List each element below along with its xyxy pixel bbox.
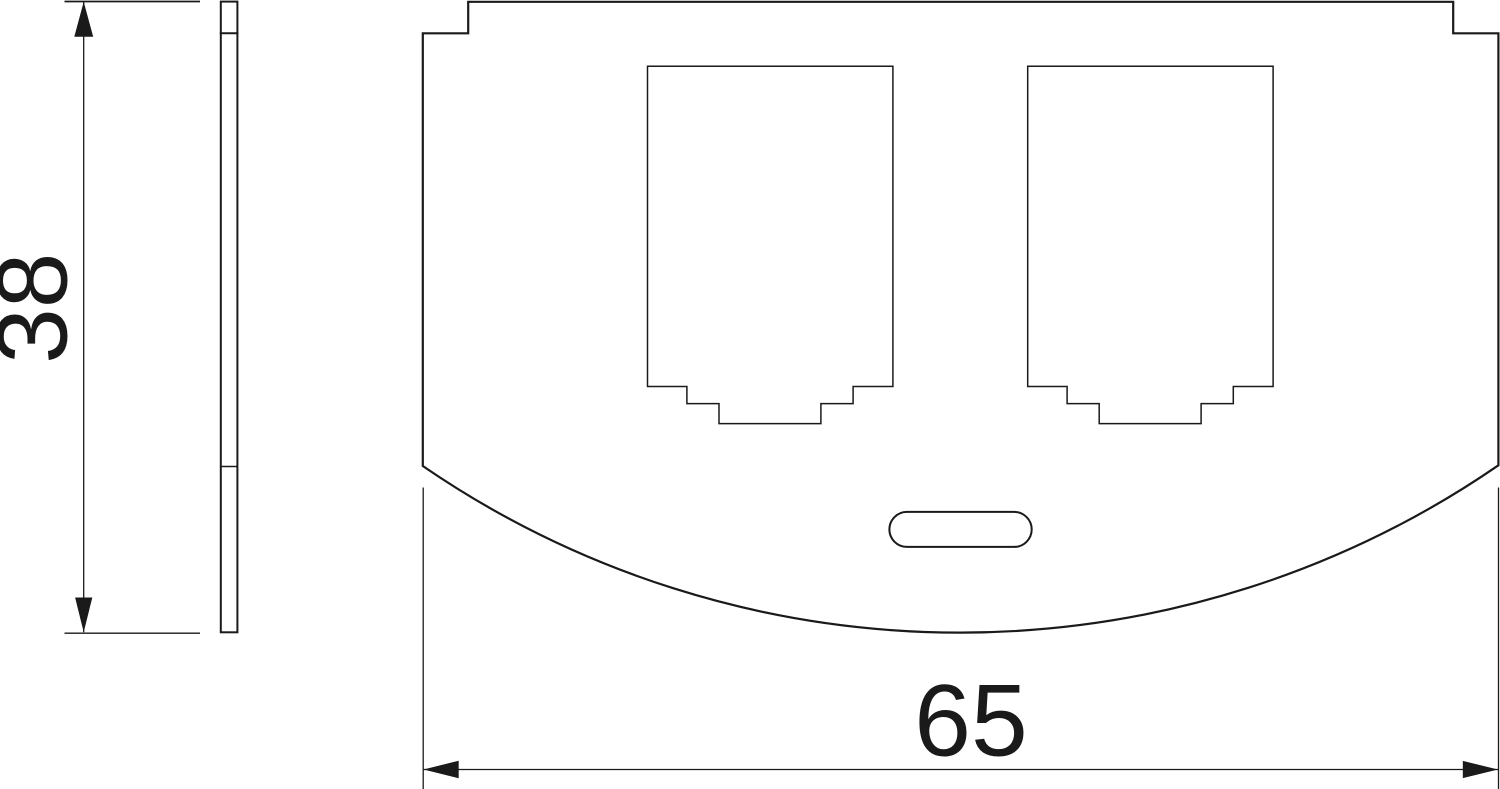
svg-text:65: 65: [914, 664, 1027, 778]
svg-text:38: 38: [0, 253, 89, 364]
